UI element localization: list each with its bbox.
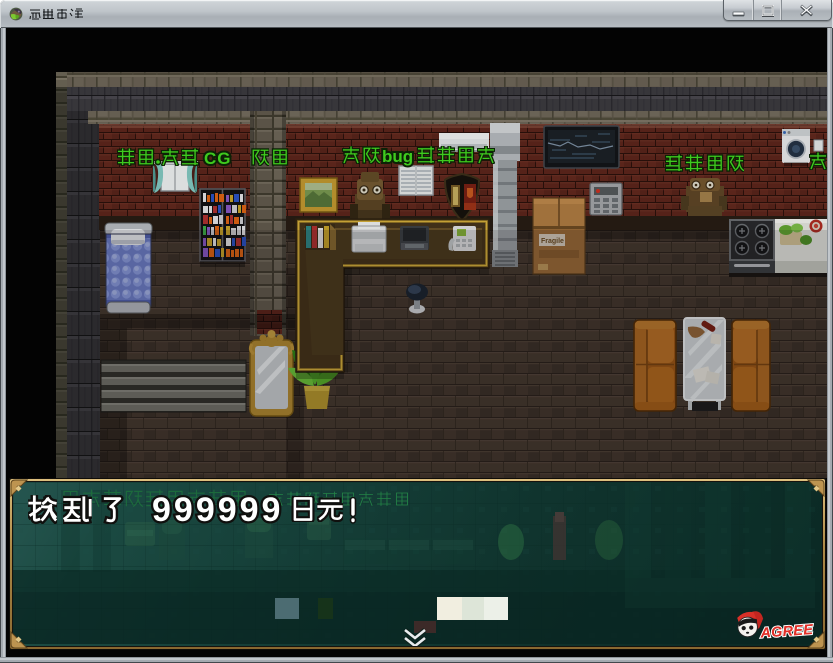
svg-text:CG: CG [204, 149, 232, 168]
svg-text:999999: 999999 [152, 491, 283, 529]
svg-text:AGREE: AGREE [759, 622, 814, 642]
svg-text:bug: bug [382, 147, 413, 166]
